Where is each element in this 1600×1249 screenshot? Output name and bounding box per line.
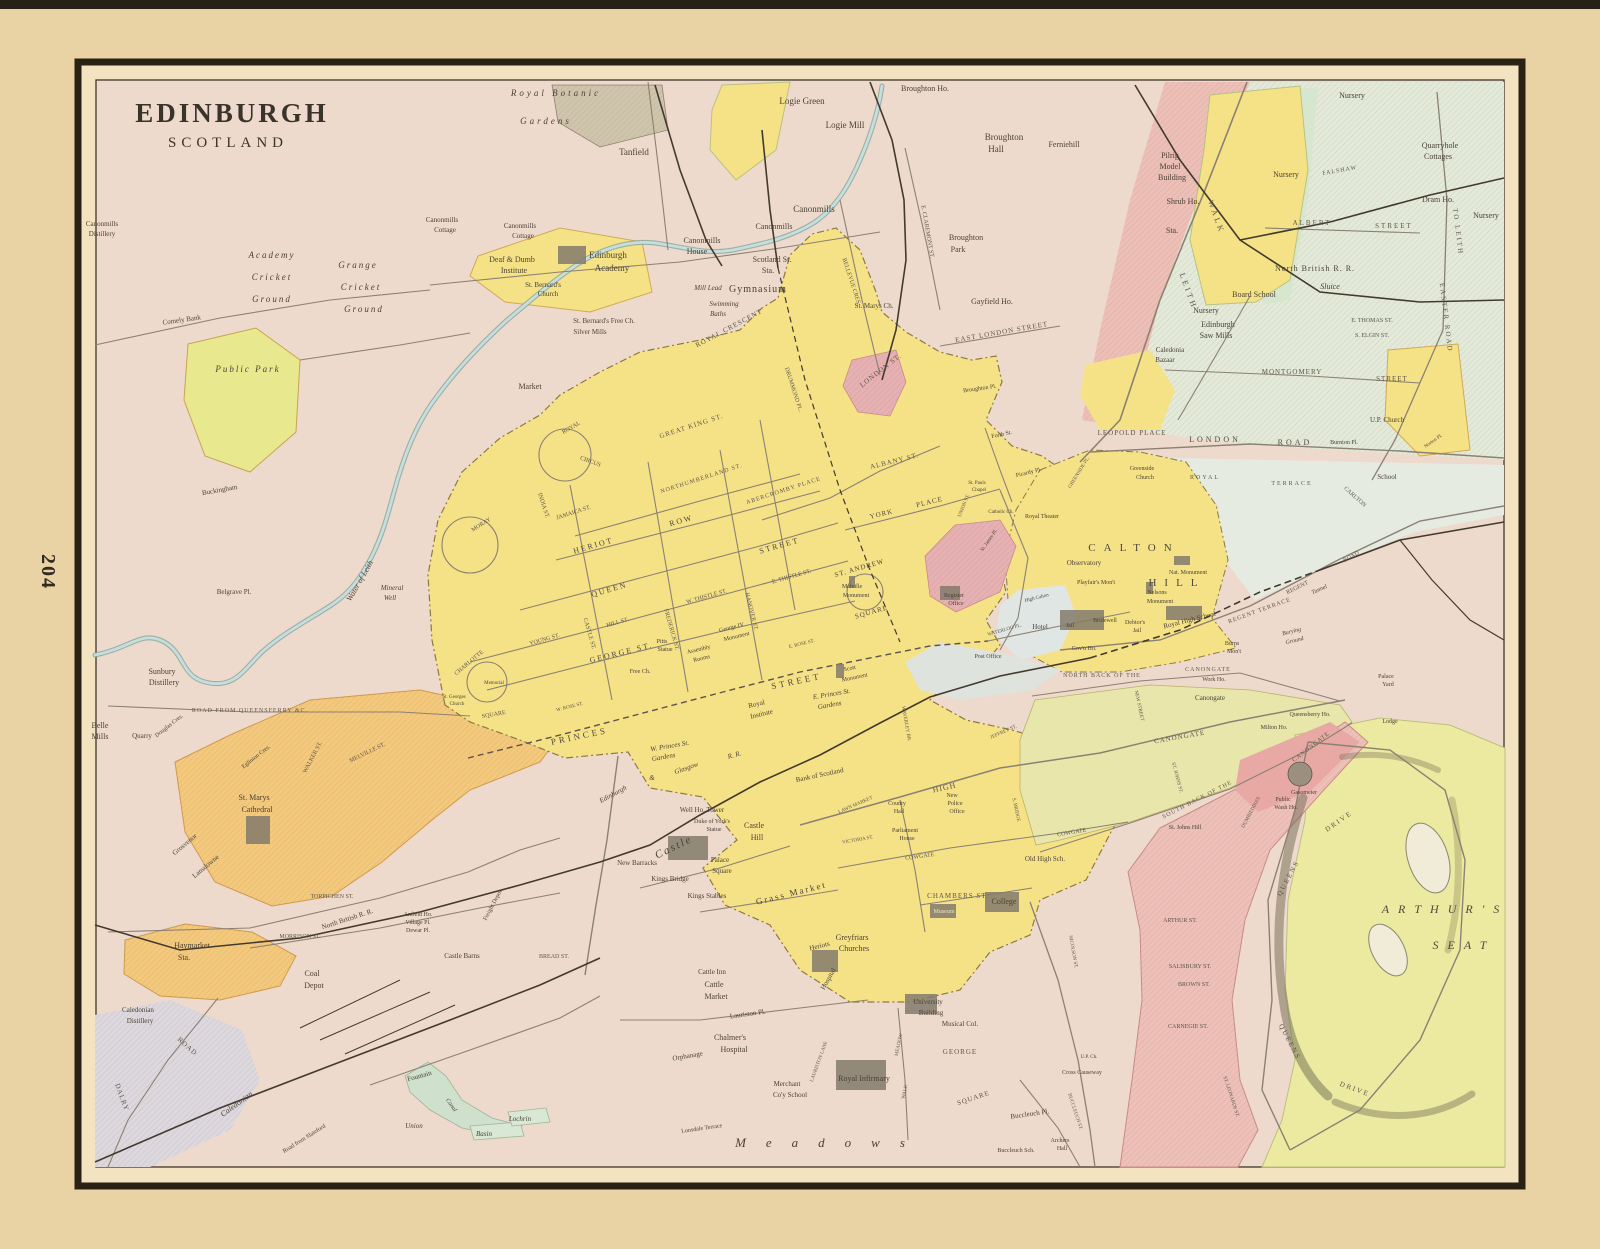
label-union: Union: [405, 1122, 423, 1130]
label-bread-st: BREAD ST.: [539, 954, 569, 960]
label-belgrave-pl: Belgrave Pl.: [217, 588, 252, 596]
label-greyfriars: Greyfriars: [836, 933, 869, 942]
label-calton: CALTON: [1088, 542, 1179, 554]
label-academy: Academy: [595, 263, 630, 273]
label-tanfield: Tanfield: [619, 147, 649, 157]
label-building: Building: [1158, 173, 1186, 182]
label-old-high-sch: Old High Sch.: [1025, 855, 1066, 863]
label-house: House: [899, 836, 915, 842]
label-market: Market: [518, 382, 542, 391]
label-haymarket: Haymarket: [174, 941, 210, 950]
label-distillery: Distillery: [149, 678, 179, 687]
label-public: Public: [1275, 797, 1291, 803]
label-work-ho: Work Ho.: [1202, 677, 1226, 683]
label-u-p-ch: U.P. Ch.: [1081, 1055, 1098, 1060]
label-ferniehill: Ferniehill: [1048, 140, 1080, 149]
label-melville: Melville: [842, 584, 863, 590]
label-north-british-r-r: North British R. R.: [1275, 264, 1355, 273]
label-depot: Depot: [304, 981, 324, 990]
gasometer-tank: [1288, 762, 1312, 786]
label-mills: Mills: [92, 732, 109, 741]
label-chambers-st: CHAMBERS ST.: [927, 892, 989, 900]
label-royal: ROYAL: [1190, 475, 1220, 481]
label-arthur-st: ARTHUR ST.: [1163, 918, 1197, 924]
label-church: Church: [1136, 475, 1154, 481]
label-st-georges: St. Georges: [442, 695, 465, 700]
label-shrub-ho: Shrub Ho.: [1167, 197, 1200, 206]
label-queensberry-ho: Queensberry Ho.: [1290, 712, 1331, 718]
label-anfield-ho: Anfield Ho.: [404, 911, 433, 918]
label-greenside: Greenside: [1130, 466, 1155, 472]
label-ground: Ground: [344, 304, 384, 314]
label-road-from-queensferry-c: ROAD FROM QUEENSFERRY &C.: [192, 708, 308, 714]
label-edinburgh: Edinburgh: [589, 250, 627, 260]
label-belle: Belle: [92, 721, 109, 730]
label-meadows: Meadows: [734, 1135, 925, 1150]
edinburgh-academy-bldg: [558, 246, 586, 264]
label-institute: Institute: [501, 266, 528, 275]
label-monument: Monument: [1147, 599, 1174, 605]
label-broughton-ho: Broughton Ho.: [901, 84, 949, 93]
label-palace: Palace: [711, 856, 729, 864]
label-scotland-st: Scotland St.: [753, 255, 792, 264]
label-police: Police: [948, 801, 963, 807]
label-morrison-st: MORRISON ST.: [279, 934, 321, 940]
label-north-back-of-the: NORTH BACK OF THE: [1063, 673, 1141, 679]
label-canonmills: Canonmills: [504, 222, 537, 230]
label-seat: SEAT: [1433, 938, 1496, 952]
label-churches: Churches: [839, 944, 869, 953]
label-sta: Sta.: [762, 266, 774, 275]
label-statue: Statue: [707, 827, 722, 833]
map-title: EDINBURGH: [135, 98, 329, 128]
label-catholic-ch: Catholic Ch.: [988, 510, 1013, 515]
label-albert: ALBERT: [1293, 219, 1332, 227]
label-hotel: Hotel: [1032, 623, 1048, 631]
label-jail: Jail: [1133, 628, 1142, 634]
label-canonmills: Canonmills: [86, 220, 119, 228]
label-palace: Palace: [1378, 674, 1394, 680]
label-buccleuch-sch: Buccleuch Sch.: [997, 1148, 1035, 1154]
label-quarry: Quarry: [132, 732, 152, 740]
label-museum: Museum: [934, 909, 955, 915]
label-chapel: Chapel: [972, 488, 987, 493]
label-london: LONDON: [1189, 435, 1241, 444]
label-wash-ho: Wash Ho.: [1274, 805, 1298, 811]
label-gymnasium: Gymnasium: [729, 284, 787, 295]
label-st-johns-hill: St. Johns Hill: [1169, 825, 1202, 831]
label-sluice: Sluice: [1320, 282, 1340, 291]
label-ground: Ground: [252, 294, 292, 304]
label-well-ho-tower: Well Ho. Tower: [680, 806, 725, 814]
label-musical-col: Musical Col.: [942, 1020, 978, 1028]
label-salisbury-st: SALISBURY ST.: [1169, 964, 1212, 970]
label-leopold-place: LEOPOLD PLACE: [1098, 429, 1167, 437]
label-market: Market: [704, 992, 728, 1001]
label-memorial: Memorial: [484, 681, 504, 686]
label-mon-t: Mon't: [1227, 649, 1241, 655]
label-street: STREET: [1376, 375, 1408, 383]
label-cattle-inn: Cattle Inn: [698, 968, 726, 976]
label-logie-green: Logie Green: [779, 96, 825, 106]
label-castle-barns: Castle Barns: [444, 952, 480, 960]
label-county: County: [888, 801, 906, 807]
label-cathedral: Cathedral: [241, 805, 273, 814]
label-hospital: Hospital: [720, 1045, 748, 1054]
label-bridewell: Bridewell: [1093, 618, 1117, 624]
label-baths: Baths: [710, 310, 726, 318]
label-castle: Castle: [744, 821, 764, 830]
label-: &: [649, 774, 655, 782]
label-building: Building: [919, 1009, 944, 1017]
label-church: Church: [450, 702, 465, 707]
label-logie-mill: Logie Mill: [826, 120, 865, 130]
label-statue: Statue: [658, 647, 673, 653]
label-caledonian: Caledonian: [122, 1006, 154, 1014]
label-st-marys: St. Marys: [238, 793, 269, 802]
label-bazaar: Bazaar: [1155, 356, 1175, 364]
label-chalmer-s: Chalmer's: [714, 1033, 746, 1042]
label-canongate: Canongate: [1195, 694, 1225, 702]
label-canonmills: Canonmills: [756, 222, 793, 231]
label-well: Well: [384, 594, 396, 602]
label-cottages: Cottages: [1424, 152, 1452, 161]
label-st-marys-ch: St. Marys Ch.: [855, 302, 894, 310]
page-number: 204: [37, 554, 59, 590]
label-hill: HILL: [1148, 577, 1205, 589]
label-gardens: Gardens: [520, 116, 572, 126]
edinburgh-map: Royal BotanicGardensTanfieldLogie GreenL…: [0, 0, 1600, 1249]
label-jail: Jail: [1066, 623, 1075, 629]
label-nursery: Nursery: [1273, 170, 1299, 179]
label-post-office: Post Office: [974, 653, 1001, 660]
label-nelsons: Nelsons: [1147, 590, 1167, 596]
label-lodge: Lodge: [1382, 719, 1398, 725]
label-nursery: Nursery: [1473, 211, 1499, 220]
label-cottage: Cottage: [434, 226, 456, 234]
label-college: College: [992, 897, 1017, 906]
label-royal-theater: Royal Theater: [1025, 514, 1059, 520]
label-silver-mills: Silver Mills: [573, 328, 607, 336]
label-house: House: [687, 247, 708, 256]
label-village-pl: Village Pl.: [405, 920, 431, 926]
label-mineral: Mineral: [380, 584, 404, 592]
map-subtitle: SCOTLAND: [168, 135, 288, 151]
label-street: STREET: [1375, 222, 1413, 230]
label-terrace: TERRACE: [1271, 481, 1312, 487]
label-cricket: Cricket: [252, 272, 293, 282]
label-canonmills: Canonmills: [684, 236, 721, 245]
label-st-bernard-s-free-ch: St. Bernard's Free Ch.: [573, 317, 635, 325]
label-cottage: Cottage: [512, 232, 534, 240]
label-montgomery: MONTGOMERY: [1262, 368, 1323, 376]
label-pitts: Pitts: [657, 639, 668, 645]
label-hall: Hall: [894, 809, 905, 815]
label-st-bernard-s: St. Bernard's: [525, 281, 561, 289]
label-road: ROAD: [1278, 438, 1313, 447]
label-basin: Basin: [476, 1130, 492, 1138]
label-s-elgin-st: S. ELGIN ST.: [1355, 333, 1389, 339]
label-torpichen-st: TORPICHEN ST.: [310, 894, 354, 900]
label-pilrig: Pilrig: [1161, 151, 1179, 160]
label-gasometer: Gasometer: [1291, 790, 1317, 796]
label-swimming: Swimming: [709, 300, 739, 308]
label-royal-infirmary: Royal Infirmary: [838, 1074, 890, 1083]
label-caledonia: Caledonia: [1156, 346, 1185, 354]
label-mill-lead: Mill Lead: [693, 284, 722, 292]
label-square: Square: [712, 867, 731, 875]
label-gov-n-ho: Gov'n Ho.: [1072, 646, 1097, 652]
label-hall: Hall: [1057, 1146, 1068, 1152]
label-yard: Yard: [1382, 682, 1393, 688]
label-royal-botanic: Royal Botanic: [510, 88, 601, 98]
label-playfair-s-mon-t: Playfair's Mon't: [1077, 579, 1115, 586]
label-cattle: Cattle: [704, 980, 724, 989]
label-distillery: Distillery: [127, 1017, 154, 1025]
st-marys-cathedral: [246, 816, 270, 844]
label-hall: Hall: [988, 144, 1004, 154]
atlas-page: Royal BotanicGardensTanfieldLogie GreenL…: [0, 0, 1600, 1249]
label-school: School: [1377, 473, 1397, 481]
label-carnegie-st: CARNEGIE ST.: [1168, 1024, 1208, 1030]
label-parliament: Parliament: [892, 828, 918, 834]
label-merchant: Merchant: [774, 1080, 801, 1088]
label-model: Model: [1160, 162, 1182, 171]
label-edinburgh: Edinburgh: [1201, 320, 1235, 329]
label-brown-st: BROWN ST.: [1178, 982, 1210, 988]
label-u-p-church: U.P. Church: [1370, 416, 1405, 424]
label-church: Church: [538, 290, 559, 298]
label-co-y-school: Co'y School: [773, 1091, 807, 1099]
label-office: Office: [949, 808, 965, 815]
label-dram-ho: Dram Ho.: [1422, 195, 1454, 204]
label-dewar-pl: Dewar Pl.: [406, 928, 430, 934]
label-saw-mills: Saw Mills: [1200, 331, 1233, 340]
label-broughton: Broughton: [949, 233, 983, 242]
label-arthur-s: ARTHUR'S: [1381, 902, 1509, 916]
label-kings-bridge: Kings Bridge: [651, 875, 689, 883]
label-debtor-s: Debtor's: [1125, 620, 1146, 626]
label-new-barracks: New Barracks: [617, 859, 657, 867]
label-e-thomas-st: E. THOMAS ST.: [1351, 318, 1393, 324]
label-observatory: Observatory: [1067, 559, 1102, 567]
label-monument: Monument: [843, 593, 870, 599]
label-canonmills: Canonmills: [426, 216, 459, 224]
label-kings-stables: Kings Stables: [688, 892, 727, 900]
label-nat-monument: Nat. Monument: [1169, 570, 1207, 576]
label-grange: Grange: [338, 260, 378, 270]
label-university: University: [913, 998, 943, 1006]
national-monument-bldg: [1174, 556, 1190, 565]
label-canongate: CANONGATE: [1185, 667, 1231, 673]
label-burns: Burns: [1225, 641, 1240, 647]
label-distillery: Distillery: [89, 230, 116, 238]
label-milton-ho: Milton Ho.: [1261, 725, 1288, 731]
label-cross-causeway: Cross Causeway: [1062, 1070, 1102, 1076]
label-office: Office: [948, 600, 964, 607]
label-duke-of-york-s: Duke of York's: [694, 818, 731, 825]
label-deaf-dumb: Deaf & Dumb: [489, 255, 535, 264]
label-sta: Sta.: [1166, 226, 1178, 235]
label-george: GEORGE: [943, 1048, 977, 1056]
label-sta: Sta.: [178, 953, 190, 962]
label-academy: Academy: [248, 250, 296, 260]
label-coal: Coal: [304, 969, 320, 978]
label-board-school: Board School: [1232, 290, 1277, 299]
label-archers: Archers: [1051, 1138, 1071, 1144]
scott-monument-bldg: [836, 664, 844, 678]
label-gayfield-ho: Gayfield Ho.: [971, 297, 1013, 306]
label-park: Park: [951, 245, 966, 254]
label-register: Register: [944, 593, 964, 599]
label-quarryhole: Quarryhole: [1422, 141, 1459, 150]
label-burnton-pl: Burnton Pl.: [1330, 440, 1358, 446]
label-nursery: Nursery: [1339, 91, 1365, 100]
label-broughton: Broughton: [985, 132, 1024, 142]
label-st-pauls: St. Pauls: [968, 481, 986, 486]
label-canonmills: Canonmills: [793, 204, 835, 214]
label-sunbury: Sunbury: [148, 667, 175, 676]
label-public-park: Public Park: [214, 364, 280, 374]
label-lochrin: Lochrin: [508, 1115, 532, 1123]
label-hill: Hill: [751, 833, 764, 842]
label-free-ch: Free Ch.: [630, 669, 651, 675]
label-cricket: Cricket: [341, 282, 382, 292]
label-new: New: [946, 793, 958, 799]
